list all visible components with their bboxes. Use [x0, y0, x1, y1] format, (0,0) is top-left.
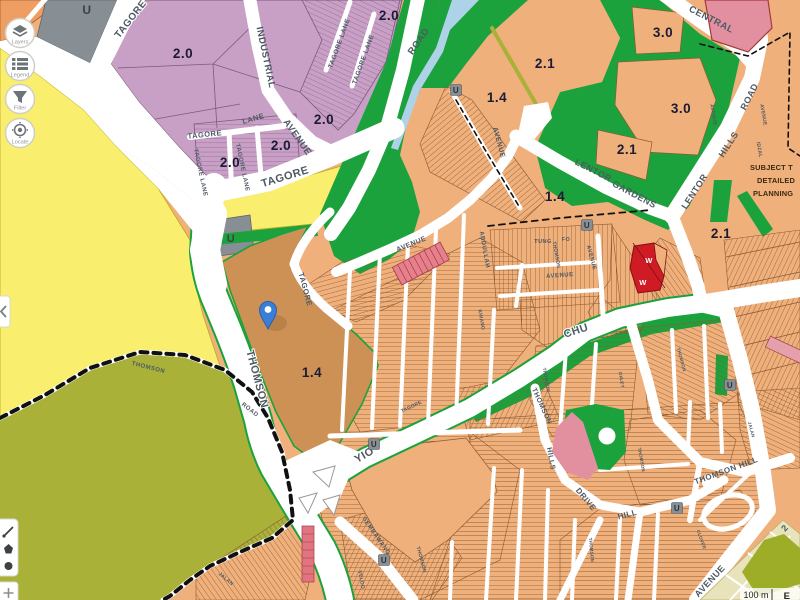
svg-text:2.1: 2.1 — [711, 226, 731, 241]
svg-text:SUBJECT T: SUBJECT T — [750, 163, 793, 172]
svg-text:W: W — [639, 278, 647, 287]
svg-text:1.4: 1.4 — [545, 189, 565, 204]
svg-text:U: U — [82, 3, 91, 17]
svg-text:W: W — [645, 256, 653, 265]
svg-text:Locate: Locate — [12, 140, 29, 146]
svg-text:2.0: 2.0 — [379, 8, 399, 23]
svg-text:100 m: 100 m — [743, 590, 768, 600]
svg-text:DETAILED: DETAILED — [757, 176, 795, 185]
svg-text:Layers: Layers — [12, 40, 29, 46]
svg-text:1.4: 1.4 — [302, 365, 322, 380]
svg-text:PLANNING: PLANNING — [753, 189, 793, 198]
svg-text:Filter: Filter — [14, 106, 27, 112]
svg-text:2.1: 2.1 — [535, 56, 555, 71]
svg-text:E: E — [784, 591, 791, 600]
svg-text:U: U — [381, 556, 387, 565]
svg-text:TUNG: TUNG — [534, 239, 552, 245]
svg-text:U: U — [227, 233, 235, 245]
svg-text:3.0: 3.0 — [653, 25, 673, 40]
svg-text:U: U — [453, 86, 459, 95]
svg-text:3.0: 3.0 — [671, 101, 691, 116]
svg-text:2.0: 2.0 — [271, 138, 291, 153]
svg-text:U: U — [674, 504, 680, 513]
svg-text:2.1: 2.1 — [617, 142, 637, 157]
svg-text:U: U — [727, 381, 733, 390]
svg-text:2.0: 2.0 — [314, 112, 334, 127]
svg-text:2.0: 2.0 — [173, 46, 193, 61]
svg-text:1.4: 1.4 — [487, 90, 507, 105]
svg-text:U: U — [371, 440, 377, 449]
svg-text:Legend: Legend — [11, 73, 30, 79]
svg-text:U: U — [584, 221, 590, 230]
svg-text:FO: FO — [562, 237, 571, 243]
